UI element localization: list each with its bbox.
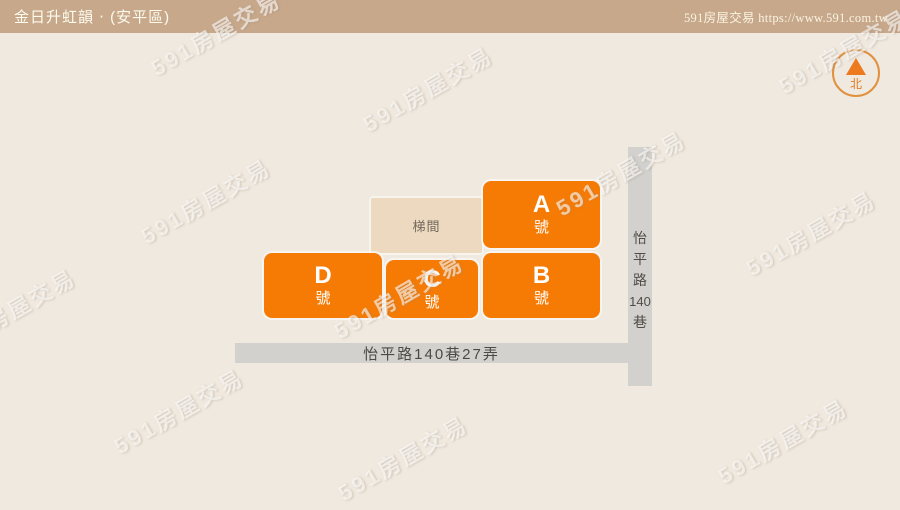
stairwell-block: 梯間 xyxy=(371,198,482,253)
watermark: 591房屋交易 xyxy=(359,43,498,138)
building-letter: B xyxy=(533,263,550,289)
watermark: 591房屋交易 xyxy=(742,187,881,282)
page-title: 金日升虹韻 ‧ (安平區) xyxy=(14,6,170,27)
building-letter: C xyxy=(423,267,440,293)
watermark: 591房屋交易 xyxy=(137,155,276,250)
watermark: 591房屋交易 xyxy=(714,395,853,490)
north-label: 北 xyxy=(834,75,878,92)
building-suffix: 號 xyxy=(534,289,549,308)
building-b: B 號 xyxy=(483,253,600,318)
road-vertical-char: 怡 xyxy=(622,228,658,249)
building-suffix: 號 xyxy=(424,293,439,312)
building-suffix: 號 xyxy=(534,218,549,237)
road-vertical-char: 140 xyxy=(622,291,658,312)
compass: 北 xyxy=(832,49,880,97)
road-vertical-char: 路 xyxy=(622,270,658,291)
building-letter: D xyxy=(314,263,331,289)
watermark: 591房屋交易 xyxy=(110,365,249,460)
road-vertical-char: 平 xyxy=(622,249,658,270)
building-suffix: 號 xyxy=(315,289,330,308)
building-a: A 號 xyxy=(483,181,600,248)
building-letter: A xyxy=(533,192,550,218)
site-plan-screen: 金日升虹韻 ‧ (安平區) 591房屋交易 https://www.591.co… xyxy=(0,0,900,510)
watermark: 591房屋交易 xyxy=(0,265,81,360)
building-c: C 號 xyxy=(386,260,478,318)
watermark: 591房屋交易 xyxy=(334,412,473,507)
header: 金日升虹韻 ‧ (安平區) 591房屋交易 https://www.591.co… xyxy=(0,0,900,33)
building-d: D 號 xyxy=(264,253,382,318)
road-vertical-label: 怡 平 路 140 巷 xyxy=(622,228,658,333)
road-vertical-char: 巷 xyxy=(622,312,658,333)
site-credit: 591房屋交易 https://www.591.com.tw xyxy=(684,7,888,26)
stairwell-label: 梯間 xyxy=(412,216,440,235)
road-horizontal-label: 怡平路140巷27弄 xyxy=(235,343,628,363)
north-arrow-icon xyxy=(846,58,866,75)
